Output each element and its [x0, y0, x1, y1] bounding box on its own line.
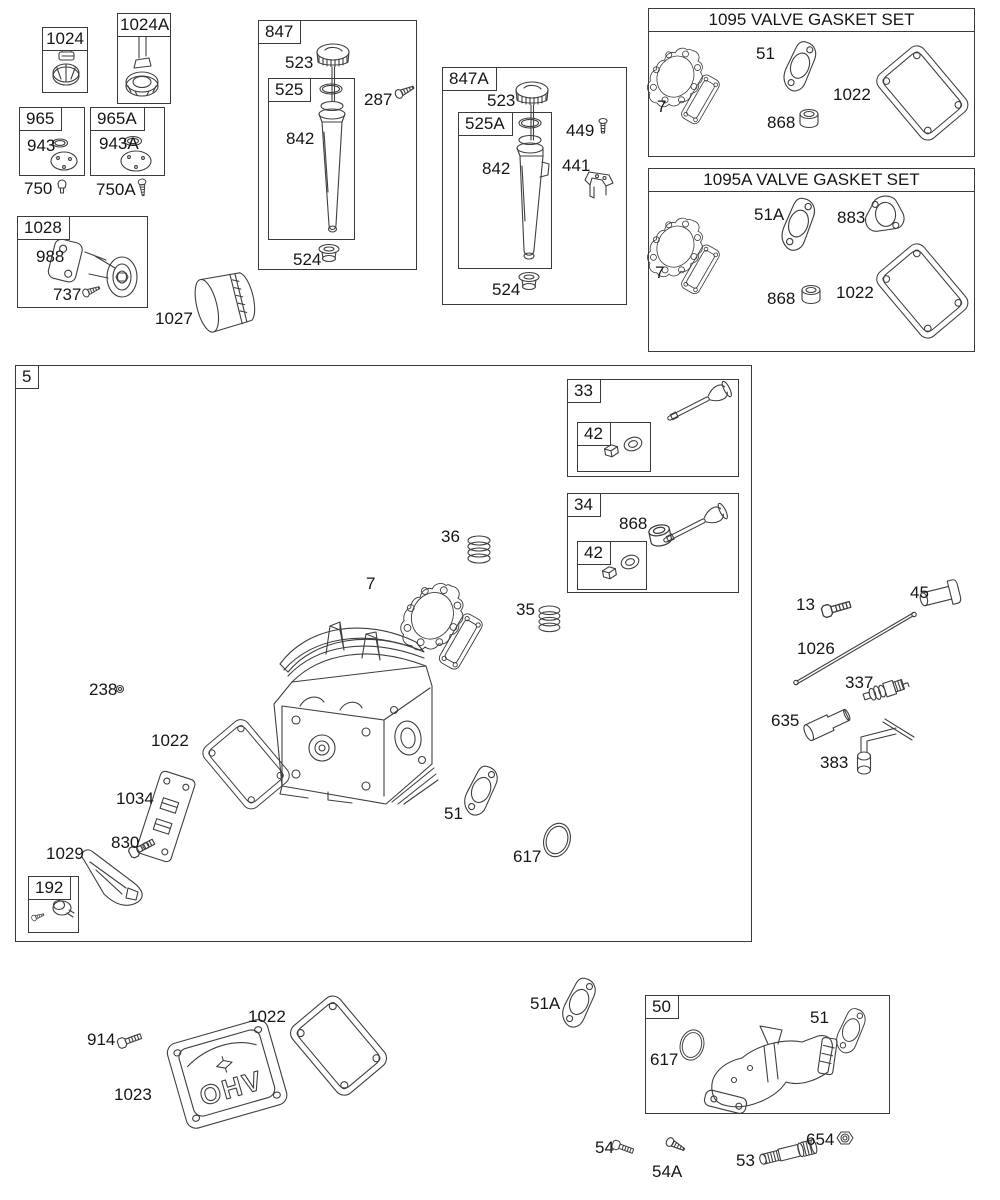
callout-842-847: 842: [286, 129, 314, 149]
engine-parts-exploded-diagram: OHV: [0, 0, 1000, 1200]
callout-750: 750: [24, 179, 52, 199]
callout-943A: 943A: [99, 134, 139, 154]
callout-988: 988: [36, 247, 64, 267]
box-847-label: 847: [258, 20, 301, 44]
callout-51A-1095A: 51A: [754, 205, 784, 225]
callout-51A-bottom: 51A: [530, 994, 560, 1014]
callout-54A: 54A: [652, 1162, 682, 1182]
callout-1022-cover: 1022: [248, 1007, 286, 1027]
part-914-drawing: [117, 1031, 143, 1049]
callout-868-1095A: 868: [767, 289, 795, 309]
box-192-label: 192: [28, 876, 71, 900]
box-1024A-label: 1024A: [117, 13, 171, 37]
callout-524-847A: 524: [492, 280, 520, 300]
callout-868-34: 868: [619, 514, 647, 534]
box-1024-label: 1024: [42, 27, 88, 51]
callout-737: 737: [53, 285, 81, 305]
callout-383: 383: [820, 753, 848, 773]
callout-287: 287: [364, 90, 392, 110]
box-50: 50: [645, 995, 890, 1114]
cover-emboss-text: OHV: [196, 1065, 266, 1112]
part-654-drawing: [837, 1132, 853, 1144]
callout-7-head: 7: [366, 574, 375, 594]
box-192: 192: [28, 876, 79, 933]
callout-7-1095: 7: [657, 97, 666, 117]
callout-1022-1095A: 1022: [836, 283, 874, 303]
box-1095A: 1095A VALVE GASKET SET: [648, 168, 975, 352]
box-525A: 525A: [458, 112, 552, 269]
callout-617-50: 617: [650, 1050, 678, 1070]
box-1024A: 1024A: [117, 13, 171, 104]
callout-36: 36: [441, 527, 460, 547]
box-1028-label: 1028: [17, 216, 70, 240]
callout-1027: 1027: [155, 309, 193, 329]
callout-654: 654: [806, 1130, 834, 1150]
callout-1023: 1023: [114, 1085, 152, 1105]
callout-617-head: 617: [513, 847, 541, 867]
callout-523-847: 523: [285, 53, 313, 73]
box-525A-label: 525A: [458, 112, 513, 136]
part-383-drawing: [858, 719, 915, 774]
callout-51-1095: 51: [756, 44, 775, 64]
box-33-label: 33: [567, 379, 601, 403]
callout-1022-head: 1022: [151, 731, 189, 751]
callout-337: 337: [845, 673, 873, 693]
callout-7-1095A: 7: [655, 263, 664, 283]
callout-238: 238: [89, 680, 117, 700]
part-750A-drawing: [138, 179, 147, 196]
part-51A-drawing-bottom: [560, 976, 597, 1030]
callout-868-1095: 868: [767, 113, 795, 133]
part-1027-drawing: [191, 268, 260, 334]
box-525: 525: [268, 78, 355, 240]
callout-35: 35: [516, 600, 535, 620]
callout-51-50: 51: [810, 1008, 829, 1028]
box-1095: 1095 VALVE GASKET SET: [648, 8, 975, 157]
box-1095-title: 1095 VALVE GASKET SET: [648, 8, 975, 32]
box-42-intake-label: 42: [577, 422, 611, 446]
box-1095A-title: 1095A VALVE GASKET SET: [648, 168, 975, 192]
callout-750A: 750A: [96, 180, 136, 200]
callout-635: 635: [771, 711, 799, 731]
box-5-label: 5: [15, 365, 39, 389]
box-42-exhaust-label: 42: [577, 541, 611, 565]
callout-1026: 1026: [797, 639, 835, 659]
callout-1034: 1034: [116, 789, 154, 809]
callout-13: 13: [796, 595, 815, 615]
callout-842-847A: 842: [482, 159, 510, 179]
callout-449: 449: [566, 121, 594, 141]
callout-524-847: 524: [293, 250, 321, 270]
part-13-drawing: [821, 599, 852, 618]
callout-54: 54: [595, 1138, 614, 1158]
box-50-label: 50: [645, 995, 679, 1019]
callout-523-847A: 523: [487, 91, 515, 111]
part-635-drawing: [802, 706, 852, 741]
box-965-label: 965: [19, 107, 62, 131]
callout-1029: 1029: [46, 844, 84, 864]
part-750-drawing: [58, 180, 66, 193]
box-42-intake: 42: [577, 422, 651, 472]
box-1024: 1024: [42, 27, 88, 93]
box-34-label: 34: [567, 493, 601, 517]
part-54A-drawing: [665, 1136, 686, 1153]
callout-51-head: 51: [444, 804, 463, 824]
box-525-label: 525: [268, 78, 311, 102]
part-1023-cover-drawing: OHV: [165, 1017, 289, 1130]
callout-943: 943: [27, 136, 55, 156]
callout-883: 883: [837, 208, 865, 228]
box-965A-label: 965A: [90, 107, 145, 131]
callout-914: 914: [87, 1030, 115, 1050]
callout-1022-1095: 1022: [833, 85, 871, 105]
part-1022-drawing-cover: [287, 992, 391, 1099]
callout-45: 45: [910, 583, 929, 603]
part-54-drawing: [611, 1140, 634, 1156]
callout-441: 441: [562, 156, 590, 176]
box-42-exhaust: 42: [577, 541, 647, 590]
callout-53: 53: [736, 1151, 755, 1171]
box-847A-label: 847A: [442, 67, 497, 91]
callout-830: 830: [111, 833, 139, 853]
